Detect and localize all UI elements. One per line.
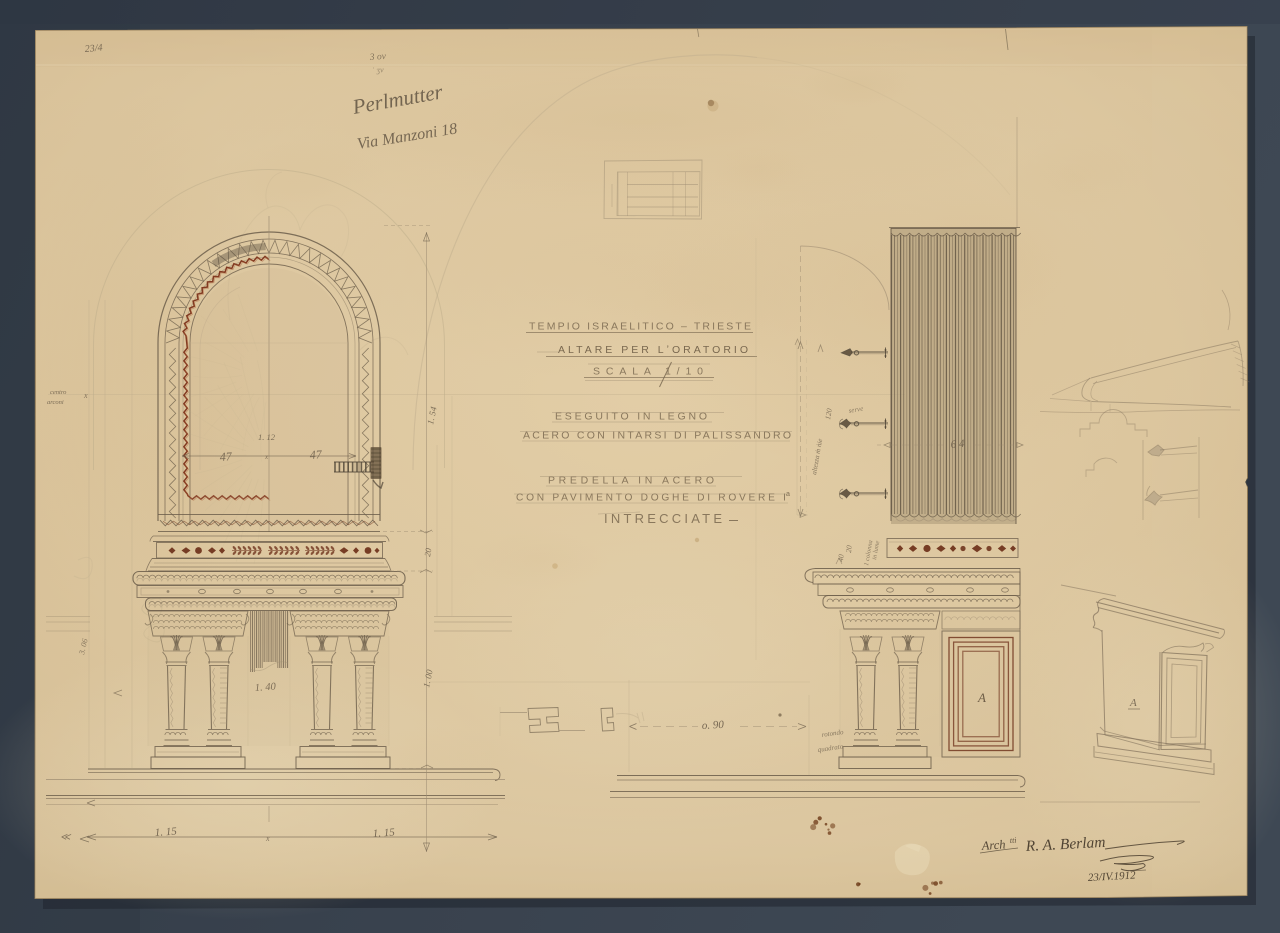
- svg-text:x: x: [265, 834, 270, 843]
- svg-text:6 4: 6 4: [950, 438, 965, 451]
- svg-text:TEMPIO ISRAELITICO – TRIESTE: TEMPIO ISRAELITICO – TRIESTE: [529, 321, 751, 333]
- svg-text:23/4: 23/4: [84, 42, 103, 55]
- svg-text:x: x: [83, 391, 88, 400]
- svg-text:20: 20: [844, 545, 854, 554]
- svg-text:ʾ ʒv: ʾ ʒv: [372, 65, 385, 75]
- svg-text:23/IV.1912: 23/IV.1912: [1088, 869, 1137, 884]
- svg-text:1. 15: 1. 15: [372, 826, 395, 840]
- svg-text:A: A: [1129, 697, 1137, 709]
- svg-text:≪: ≪: [60, 832, 72, 843]
- svg-text:o. 90: o. 90: [702, 719, 725, 732]
- svg-text:arconi: arconi: [47, 399, 64, 406]
- svg-text:SCALA 1/10: SCALA 1/10: [593, 366, 703, 378]
- svg-text:ALTARE PER LʼORATORIO: ALTARE PER LʼORATORIO: [558, 344, 748, 356]
- svg-text:a: a: [786, 491, 790, 498]
- svg-text:1. 12: 1. 12: [258, 432, 276, 442]
- svg-text:tti: tti: [1010, 836, 1017, 845]
- svg-text:47: 47: [309, 447, 323, 462]
- svg-text:47: 47: [219, 449, 233, 464]
- svg-text:3 ov: 3 ov: [369, 52, 388, 63]
- svg-text:1. 15: 1. 15: [154, 825, 177, 839]
- svg-text:centro: centro: [50, 389, 67, 396]
